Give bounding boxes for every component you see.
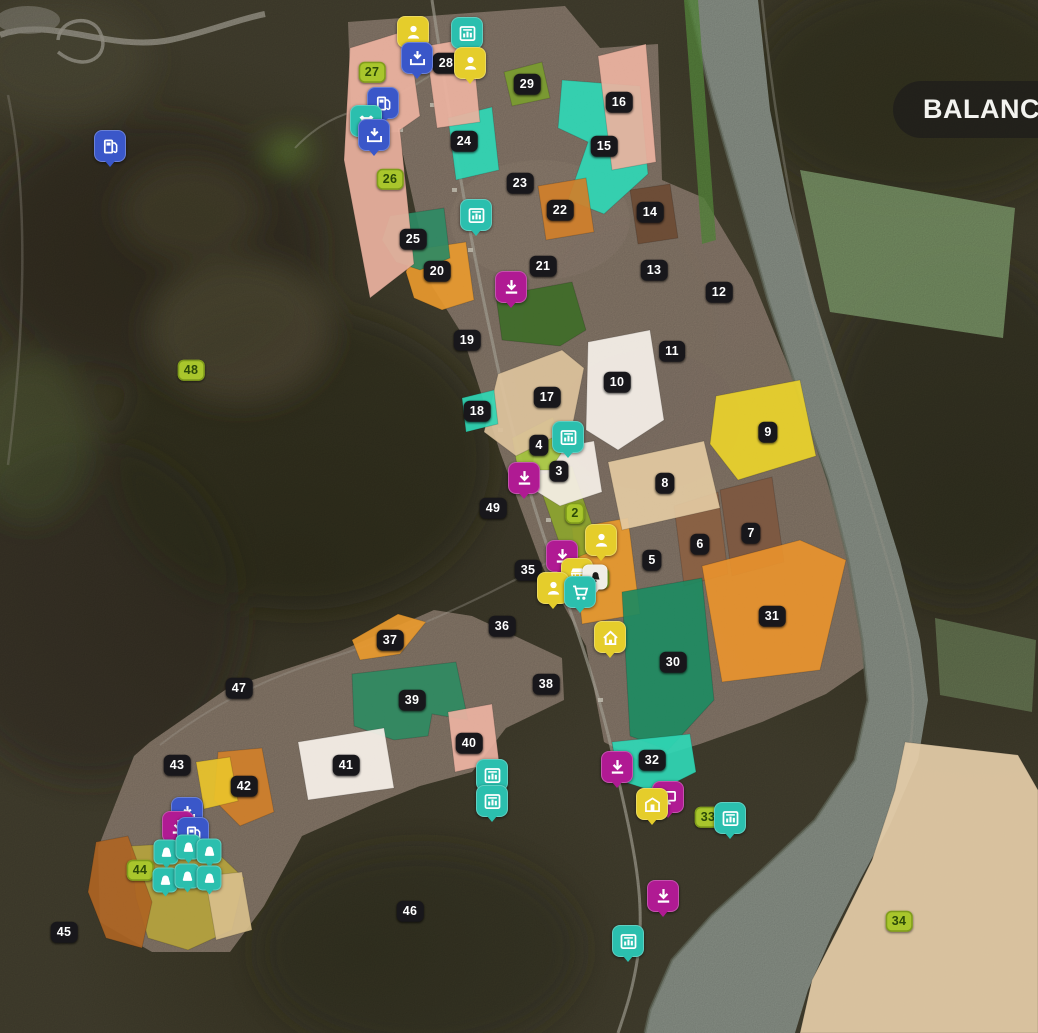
contracts-person-icon[interactable] (585, 524, 617, 556)
shop-icon[interactable] (564, 576, 596, 608)
field-44-badge[interactable]: 44 (127, 860, 154, 881)
field-16-badge[interactable]: 16 (606, 92, 633, 113)
field-2-badge[interactable]: 2 (565, 503, 584, 524)
production-point-icon[interactable] (612, 925, 644, 957)
field-47-badge[interactable]: 47 (226, 678, 253, 699)
production-point-icon[interactable] (714, 802, 746, 834)
field-7-badge[interactable]: 7 (741, 523, 760, 544)
field-27-badge[interactable]: 27 (359, 62, 386, 83)
field-25-badge[interactable]: 25 (400, 229, 427, 250)
delivery-point-icon[interactable] (401, 42, 433, 74)
field-31-badge[interactable]: 31 (759, 606, 786, 627)
production-point-icon[interactable] (451, 17, 483, 49)
production-point-icon[interactable] (476, 785, 508, 817)
field-37-badge[interactable]: 37 (377, 630, 404, 651)
farmhouse-icon[interactable] (594, 621, 626, 653)
delivery-point-icon[interactable] (358, 119, 390, 151)
field-49-badge[interactable]: 49 (480, 498, 507, 519)
field-42-badge[interactable]: 42 (231, 776, 258, 797)
field-11-badge[interactable]: 11 (659, 341, 685, 362)
contracts-person-icon[interactable] (454, 47, 486, 79)
field-45-badge[interactable]: 45 (51, 922, 78, 943)
market-building-icon[interactable] (636, 788, 668, 820)
sell-point-icon[interactable] (601, 751, 633, 783)
field-17-badge[interactable]: 17 (534, 387, 561, 408)
production-point-icon[interactable] (552, 421, 584, 453)
field-38-badge[interactable]: 38 (533, 674, 560, 695)
sell-point-icon[interactable] (508, 462, 540, 494)
sell-point-icon[interactable] (647, 880, 679, 912)
chicken-pen-icon[interactable] (197, 866, 222, 891)
field-10-badge[interactable]: 10 (604, 372, 631, 393)
field-9-badge[interactable]: 9 (758, 422, 777, 443)
field-22-badge[interactable]: 22 (547, 200, 574, 221)
field-36-badge[interactable]: 36 (489, 616, 516, 637)
field-34-area[interactable] (800, 742, 1038, 1033)
field-14-badge[interactable]: 14 (637, 202, 664, 223)
field-30-badge[interactable]: 30 (660, 652, 687, 673)
field-21-badge[interactable]: 21 (530, 256, 557, 277)
field-19-badge[interactable]: 19 (454, 330, 481, 351)
balance-label: BALANCE: (923, 94, 1038, 125)
field-4-badge[interactable]: 4 (529, 435, 548, 456)
field-20-badge[interactable]: 20 (424, 261, 451, 282)
field-23-badge[interactable]: 23 (507, 173, 534, 194)
field-29-badge[interactable]: 29 (514, 74, 541, 95)
field-24-badge[interactable]: 24 (451, 131, 478, 152)
field-43-badge[interactable]: 43 (164, 755, 191, 776)
field-32-badge[interactable]: 32 (639, 750, 666, 771)
gas-station-icon[interactable] (94, 130, 126, 162)
field-40-badge[interactable]: 40 (456, 733, 483, 754)
field-39-badge[interactable]: 39 (399, 690, 426, 711)
field-6-badge[interactable]: 6 (690, 534, 709, 555)
balance-pill: BALANCE: (893, 81, 1038, 138)
production-point-icon[interactable] (460, 199, 492, 231)
field-12-badge[interactable]: 12 (706, 282, 733, 303)
field-46-badge[interactable]: 46 (397, 901, 424, 922)
field-8-badge[interactable]: 8 (655, 473, 674, 494)
field-26-badge[interactable]: 26 (377, 169, 404, 190)
game-map[interactable]: 1234567891011121314151617181920212223242… (0, 0, 1038, 1033)
field-3-badge[interactable]: 3 (549, 461, 568, 482)
sell-point-icon[interactable] (495, 271, 527, 303)
field-13-badge[interactable]: 13 (641, 260, 668, 281)
field-5-badge[interactable]: 5 (642, 550, 661, 571)
field-18-badge[interactable]: 18 (464, 401, 491, 422)
field-34-badge[interactable]: 34 (886, 911, 913, 932)
field-15-badge[interactable]: 15 (591, 136, 618, 157)
field-41-badge[interactable]: 41 (333, 755, 360, 776)
field-48-badge[interactable]: 48 (178, 360, 205, 381)
chicken-pen-icon[interactable] (197, 839, 222, 864)
